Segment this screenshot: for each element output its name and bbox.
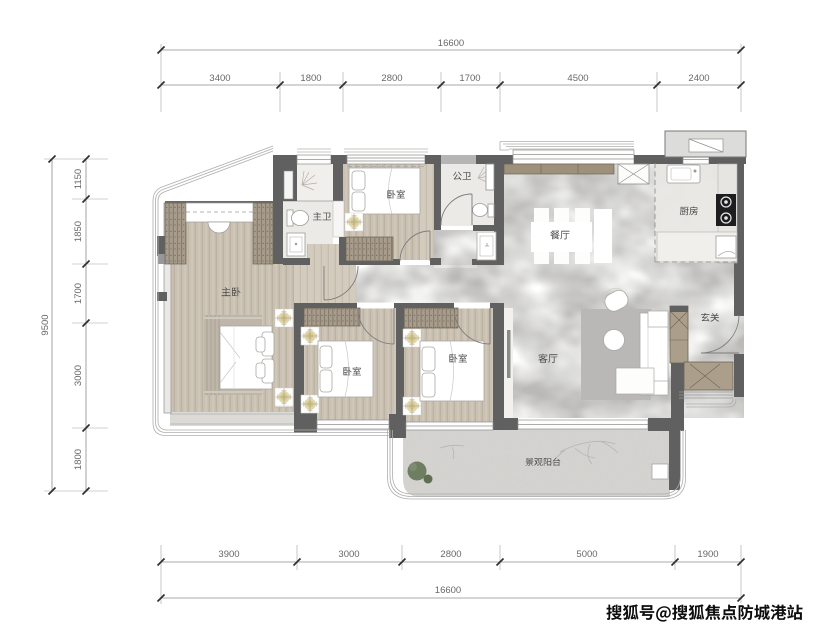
svg-text:5000: 5000 — [576, 549, 597, 560]
svg-text:1150: 1150 — [73, 169, 84, 189]
svg-text:9500: 9500 — [40, 314, 51, 335]
svg-text:2800: 2800 — [381, 73, 402, 84]
svg-text:16600: 16600 — [438, 38, 464, 49]
svg-text:1700: 1700 — [459, 73, 480, 84]
svg-text:1700: 1700 — [73, 283, 84, 304]
svg-text:3900: 3900 — [218, 549, 239, 560]
svg-text:2400: 2400 — [688, 73, 709, 84]
svg-text:1800: 1800 — [300, 73, 321, 84]
svg-text:3000: 3000 — [73, 365, 84, 386]
svg-text:1850: 1850 — [73, 221, 84, 242]
svg-text:16600: 16600 — [435, 585, 461, 596]
svg-text:3000: 3000 — [338, 549, 359, 560]
svg-text:2800: 2800 — [440, 549, 461, 560]
svg-text:1800: 1800 — [73, 449, 84, 470]
svg-text:3400: 3400 — [209, 73, 230, 84]
svg-text:1900: 1900 — [697, 549, 718, 560]
svg-text:4500: 4500 — [567, 73, 588, 84]
